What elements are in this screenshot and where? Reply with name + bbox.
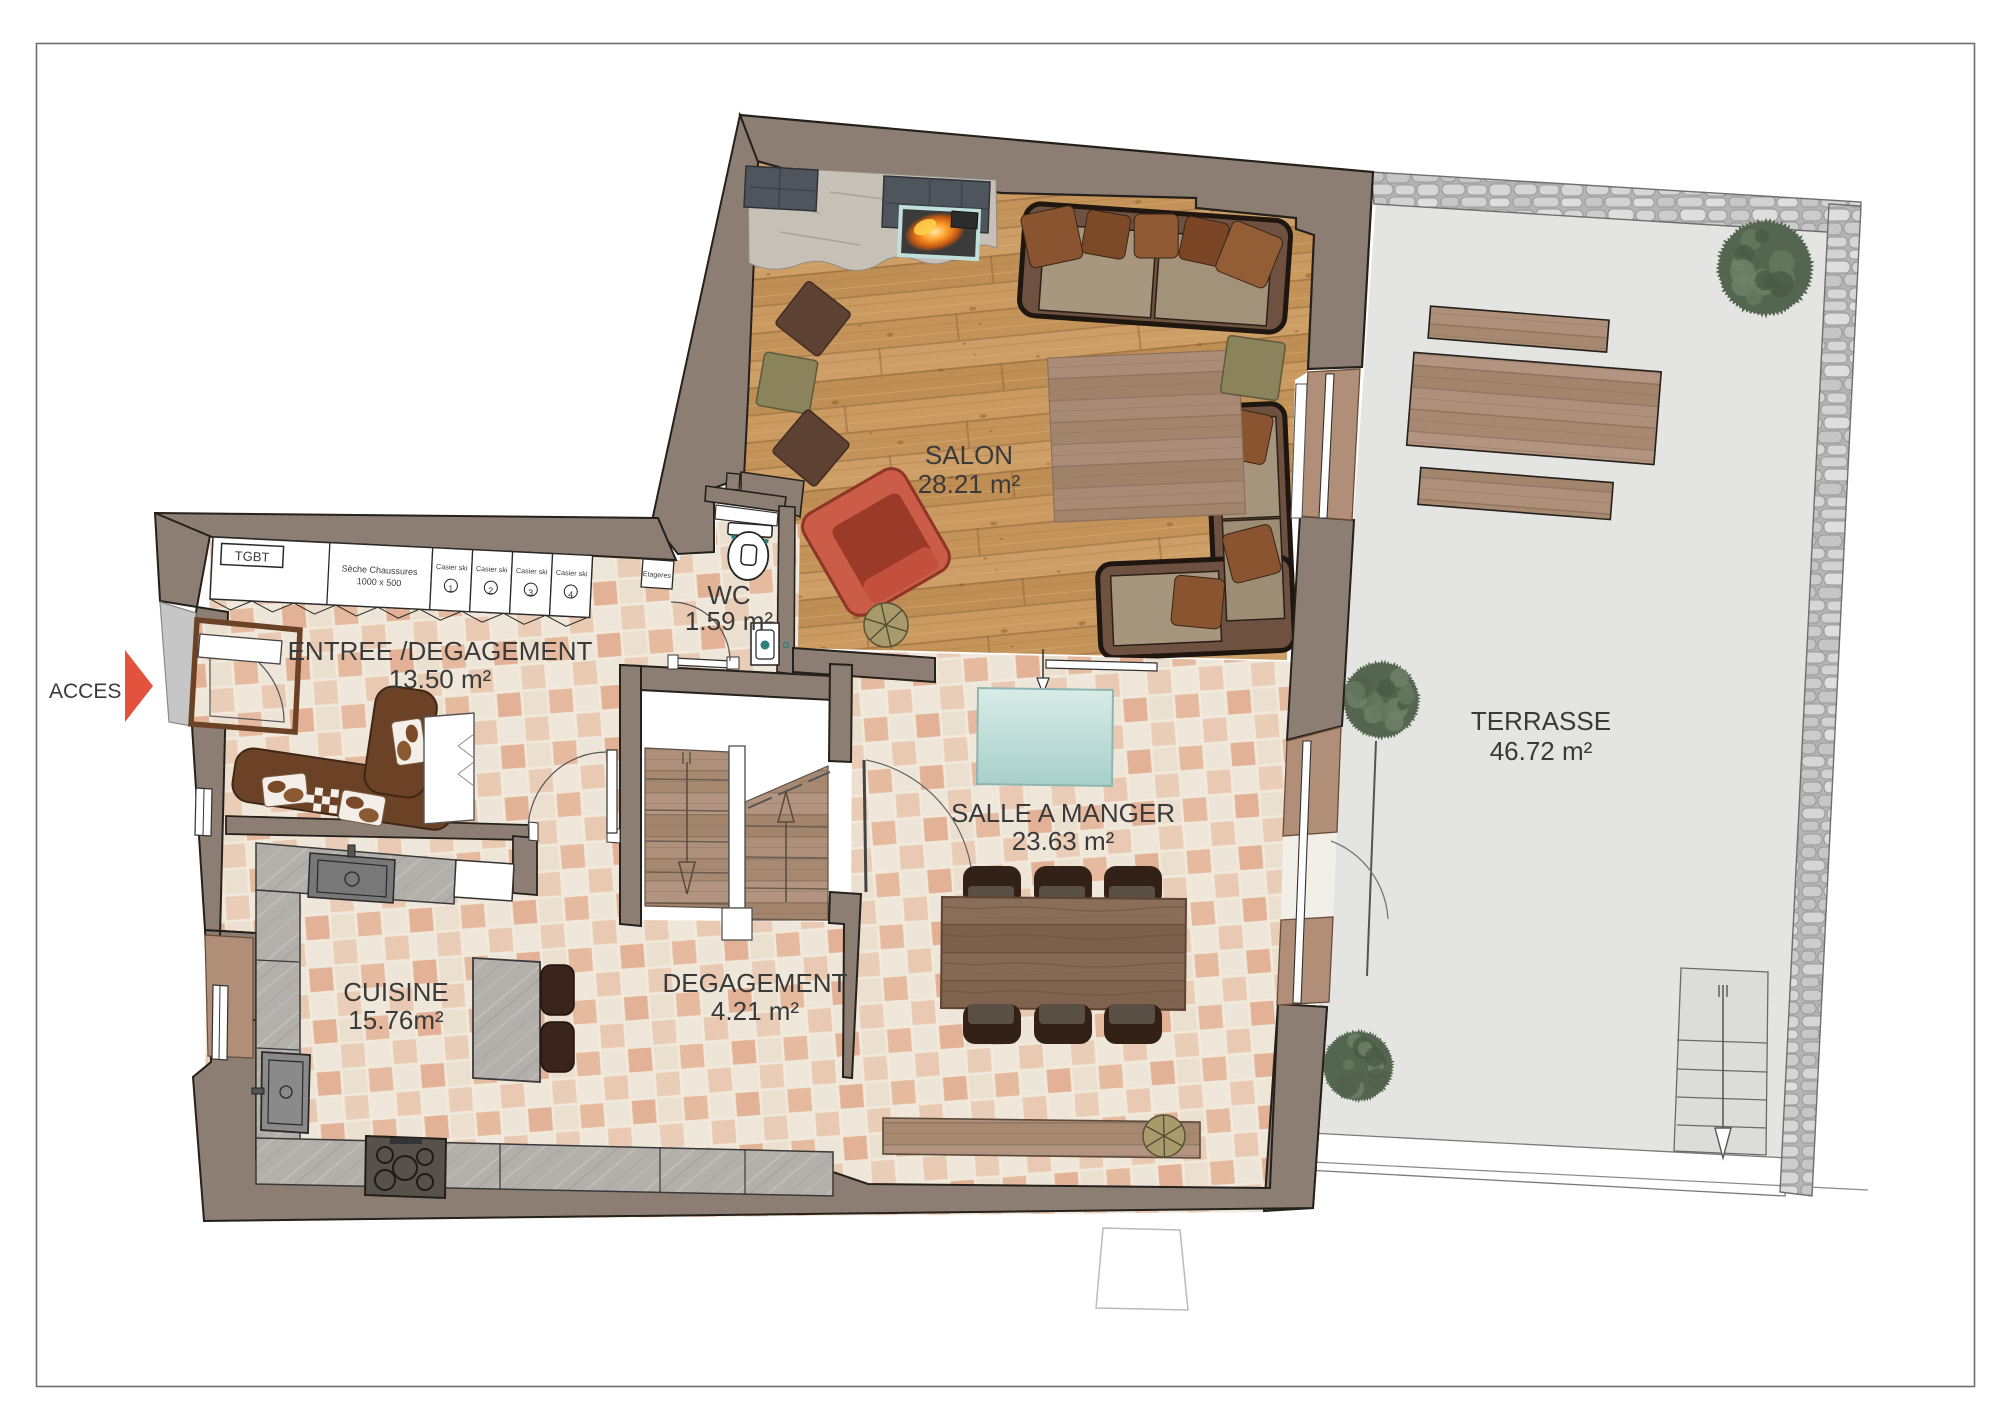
svg-text:SALLE A MANGER: SALLE A MANGER: [951, 798, 1175, 828]
svg-text:DEGAGEMENT: DEGAGEMENT: [663, 968, 848, 998]
svg-text:Casier ski: Casier ski: [516, 566, 548, 577]
svg-text:ENTREE /DEGAGEMENT: ENTREE /DEGAGEMENT: [288, 636, 593, 666]
svg-text:28.21 m²: 28.21 m²: [918, 469, 1021, 499]
svg-text:SALON: SALON: [925, 440, 1013, 470]
svg-text:46.72 m²: 46.72 m²: [1490, 736, 1593, 766]
svg-text:23.63 m²: 23.63 m²: [1012, 826, 1115, 856]
svg-text:Casier ski: Casier ski: [556, 568, 588, 579]
svg-text:ACCES: ACCES: [49, 680, 121, 703]
svg-text:TGBT: TGBT: [234, 548, 269, 565]
svg-text:Casier ski: Casier ski: [436, 562, 468, 573]
svg-text:TERRASSE: TERRASSE: [1471, 706, 1611, 736]
svg-text:13.50 m²: 13.50 m²: [389, 664, 492, 694]
svg-text:4.21 m²: 4.21 m²: [711, 996, 799, 1026]
svg-text:1: 1: [448, 584, 453, 594]
svg-text:3: 3: [528, 587, 533, 597]
svg-text:2: 2: [488, 586, 493, 596]
svg-text:15.76m²: 15.76m²: [348, 1005, 444, 1035]
svg-text:CUISINE: CUISINE: [343, 977, 448, 1007]
svg-text:4: 4: [568, 589, 573, 599]
svg-text:1.59 m²: 1.59 m²: [685, 606, 773, 636]
svg-text:Casier ski: Casier ski: [476, 564, 508, 575]
